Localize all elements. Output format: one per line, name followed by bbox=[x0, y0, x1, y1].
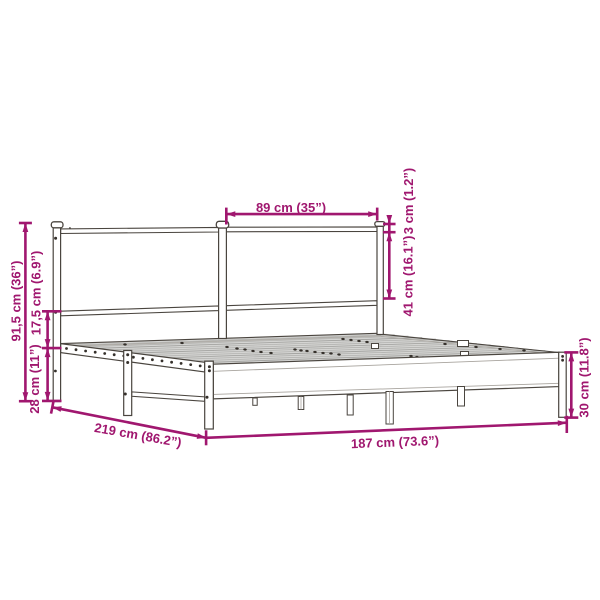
svg-text:3 cm (1.2”): 3 cm (1.2”) bbox=[401, 168, 416, 234]
svg-text:17,5 cm (6.9”): 17,5 cm (6.9”) bbox=[29, 251, 44, 336]
svg-text:187 cm (73.6”): 187 cm (73.6”) bbox=[351, 433, 440, 451]
svg-text:89 cm (35”): 89 cm (35”) bbox=[256, 200, 326, 215]
svg-text:41 cm (16.1”): 41 cm (16.1”) bbox=[401, 236, 416, 317]
svg-text:28 cm (11”): 28 cm (11”) bbox=[27, 344, 42, 413]
svg-text:30 cm (11.8”): 30 cm (11.8”) bbox=[577, 337, 592, 417]
svg-text:91,5 cm (36”): 91,5 cm (36”) bbox=[9, 261, 24, 342]
